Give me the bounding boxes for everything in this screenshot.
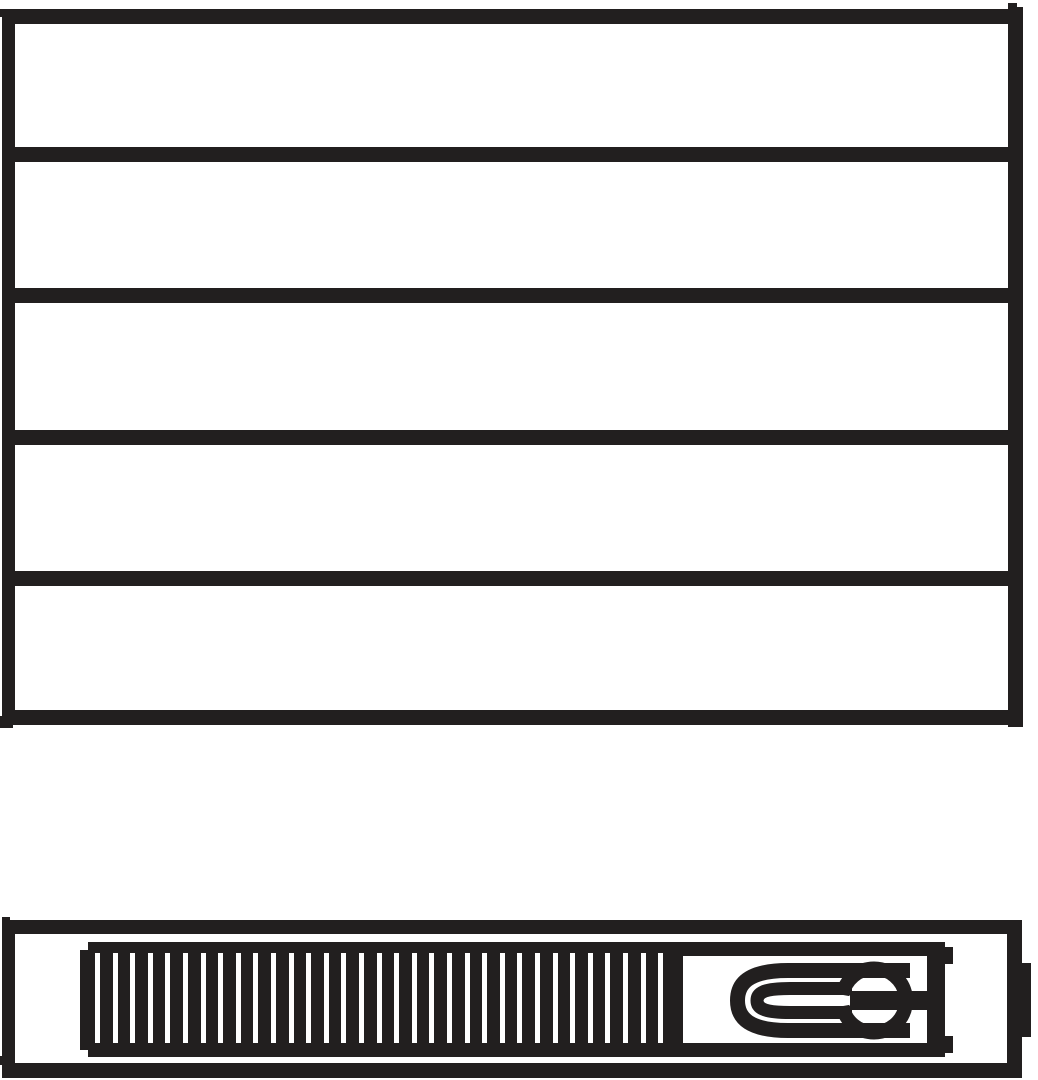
grille-slat (535, 953, 540, 1043)
grille-slat (218, 953, 223, 1043)
grille-block (88, 942, 683, 1057)
grille-slat (412, 953, 417, 1043)
grille-slat (623, 953, 628, 1043)
radiator-profile-view (0, 917, 1031, 1078)
front-corner-nub-top-right (1008, 3, 1017, 9)
radiator-front-view (0, 3, 1023, 728)
casing-right (1007, 920, 1022, 1078)
front-corner-nub-top-left (0, 9, 8, 17)
panel-divider (15, 288, 1008, 303)
grille-slat (447, 953, 452, 1043)
housing-nub-bottom (945, 1036, 953, 1053)
grille-slat (95, 953, 100, 1043)
panel-divider (15, 571, 1008, 586)
grille-slat (588, 953, 593, 1043)
grille-slat (465, 953, 470, 1043)
housing-right (927, 942, 945, 1057)
grille-slat (113, 953, 118, 1043)
panel-dividers (15, 147, 1008, 586)
grille-slat (148, 953, 153, 1043)
front-frame-left (2, 9, 15, 724)
grille-slat (482, 953, 487, 1043)
inner-hairpin-tube (757, 989, 852, 1013)
grille-slat (517, 953, 522, 1043)
grille-slat (306, 953, 311, 1043)
grille-slat (500, 953, 505, 1043)
grille-slat (289, 953, 294, 1043)
front-frame-top (2, 9, 1023, 24)
element-stem-bar (850, 991, 927, 1010)
grille-slat (324, 953, 329, 1043)
convector-grille (80, 942, 683, 1057)
grille-slat (394, 953, 399, 1043)
grille-slat (570, 953, 575, 1043)
panel-divider (15, 430, 1008, 445)
grille-slat (130, 953, 135, 1043)
casing-left (2, 924, 15, 1064)
grille-slat (253, 953, 258, 1043)
casing-nub-bottom-left (0, 1056, 8, 1065)
grille-slat (165, 953, 170, 1043)
grille-slat (605, 953, 610, 1043)
grille-slat (553, 953, 558, 1043)
casing-top (9, 920, 1008, 934)
grille-slat (658, 953, 663, 1043)
casing-right-boss (1022, 963, 1031, 1037)
front-frame-bottom (2, 710, 1023, 725)
u-tube-element-icon (738, 969, 928, 1033)
grille-slat (183, 953, 188, 1043)
grille-slat (429, 953, 434, 1043)
drawing-canvas (0, 0, 1038, 1080)
grille-slat (641, 953, 646, 1043)
housing-top (683, 942, 945, 956)
casing-bottom (2, 1063, 1022, 1078)
front-corner-nub-bottom-left (0, 716, 13, 728)
front-frame-right (1008, 7, 1023, 727)
housing-bottom (683, 1043, 945, 1057)
grille-slat (271, 953, 276, 1043)
housing-nub-top (945, 947, 953, 964)
grille-slat (236, 953, 241, 1043)
casing-nub-top-left (2, 917, 10, 926)
radiator-technical-drawing (0, 0, 1038, 1080)
grille-slat (201, 953, 206, 1043)
grille-slat (341, 953, 346, 1043)
panel-divider (15, 147, 1008, 162)
grille-slat (359, 953, 364, 1043)
grille-slat (377, 953, 382, 1043)
